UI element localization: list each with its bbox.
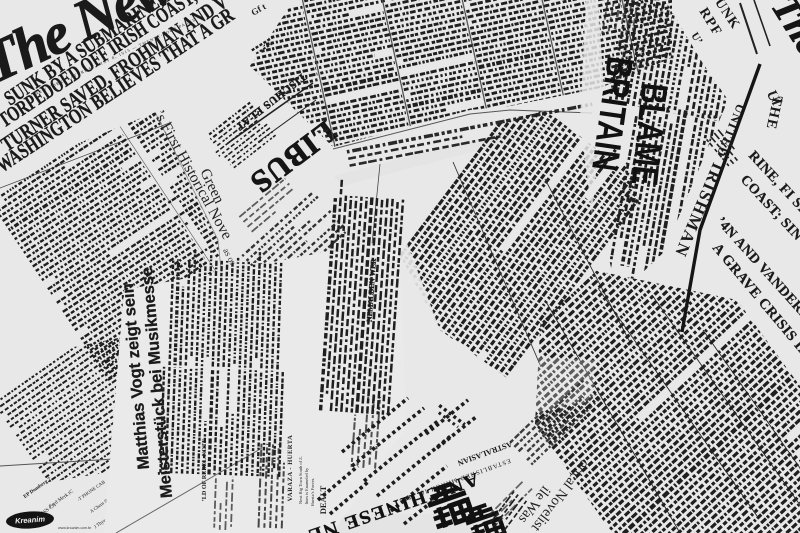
svg-text:VARAZA - HUERTA: VARAZA - HUERTA bbox=[287, 435, 294, 502]
svg-text:www.kreanim.com.br: www.kreanim.com.br bbox=[58, 526, 92, 530]
svg-text:’LD OF REBEL-NOTE: ’LD OF REBEL-NOTE bbox=[201, 439, 208, 502]
svg-text:lines is Enameled by: lines is Enameled by bbox=[304, 467, 309, 504]
svg-text:Next Big Town South of Z.: Next Big Town South of Z. bbox=[298, 456, 303, 504]
svg-text:Huerta’s Forces.: Huerta’s Forces. bbox=[310, 478, 315, 507]
